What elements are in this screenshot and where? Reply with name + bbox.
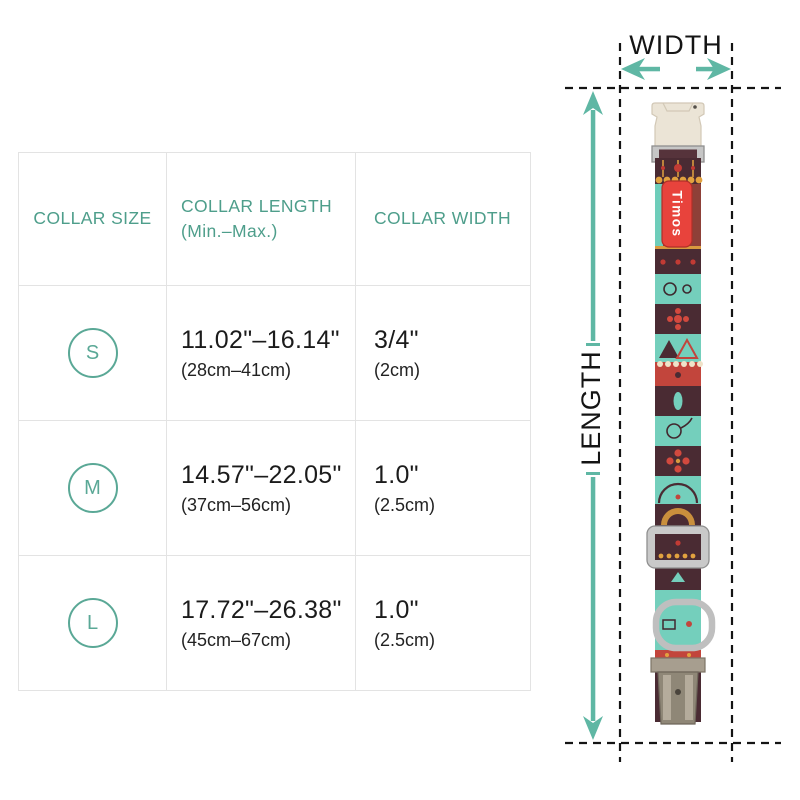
width-inches-s: 3/4" [374,326,530,355]
size-badge-l-letter: L [87,612,98,635]
table-row-s-length-cell: 11.02"–16.14" (28cm–41cm) [167,286,356,421]
length-cm-l: (45cm–67cm) [181,630,355,651]
header-collar-length: COLLAR LENGTH (Min.–Max.) [167,153,356,286]
width-cm-l: (2.5cm) [374,630,530,651]
header-collar-width-label: COLLAR WIDTH [374,206,530,231]
width-dimension-label: WIDTH [629,30,722,60]
width-dimension-arrows [621,58,731,80]
table-row-m-size-cell: M [19,421,167,556]
size-badge-s-letter: S [86,342,99,365]
table-row-s-width-cell: 3/4" (2cm) [356,286,531,421]
size-badge-m-letter: M [84,477,101,500]
table-row-m-length-cell: 14.57"–22.05" (37cm–56cm) [167,421,356,556]
collar-dimension-diagram: WIDTH LENGTH [555,0,800,800]
table-row-s-size-cell: S [19,286,167,421]
length-inches-s: 11.02"–16.14" [181,326,355,355]
length-dimension-arrow: LENGTH [576,91,606,740]
length-cm-m: (37cm–56cm) [181,495,355,516]
table-row-l-width-cell: 1.0" (2.5cm) [356,556,531,691]
size-chart-infographic: COLLAR SIZE COLLAR LENGTH (Min.–Max.) CO… [0,0,800,800]
collar-photo: Timos [647,103,712,724]
width-inches-l: 1.0" [374,596,530,625]
table-row-m-width-cell: 1.0" (2.5cm) [356,421,531,556]
length-arrow-break-cap-top [586,343,600,346]
length-dimension-label: LENGTH [576,350,606,466]
header-collar-width: COLLAR WIDTH [356,153,531,286]
header-collar-size: COLLAR SIZE [19,153,167,286]
collar-size-table: COLLAR SIZE COLLAR LENGTH (Min.–Max.) CO… [18,152,531,691]
length-inches-l: 17.72"–26.38" [181,596,355,625]
width-cm-m: (2.5cm) [374,495,530,516]
metal-tri-glide-slider [647,526,709,568]
size-badge-l: L [68,598,118,648]
buckle-top-cream [652,103,704,148]
header-collar-length-sublabel: (Min.–Max.) [181,219,355,244]
size-badge-m: M [68,463,118,513]
width-cm-s: (2cm) [374,360,530,381]
length-arrow-shaft-upper [591,110,596,341]
table-row-l-size-cell: L [19,556,167,691]
length-arrow-break-cap-bottom [586,472,600,475]
width-inches-m: 1.0" [374,461,530,490]
brand-label: Timos [662,181,692,247]
brand-label-text: Timos [670,190,685,237]
size-badge-s: S [68,328,118,378]
length-arrow-shaft-lower [591,477,596,721]
table-row-l-length-cell: 17.72"–26.38" (45cm–67cm) [167,556,356,691]
length-cm-s: (28cm–41cm) [181,360,355,381]
header-collar-length-label: COLLAR LENGTH [181,194,355,219]
header-collar-size-label: COLLAR SIZE [33,206,151,231]
width-arrow-shaft-left [638,67,660,72]
length-inches-m: 14.57"–22.05" [181,461,355,490]
